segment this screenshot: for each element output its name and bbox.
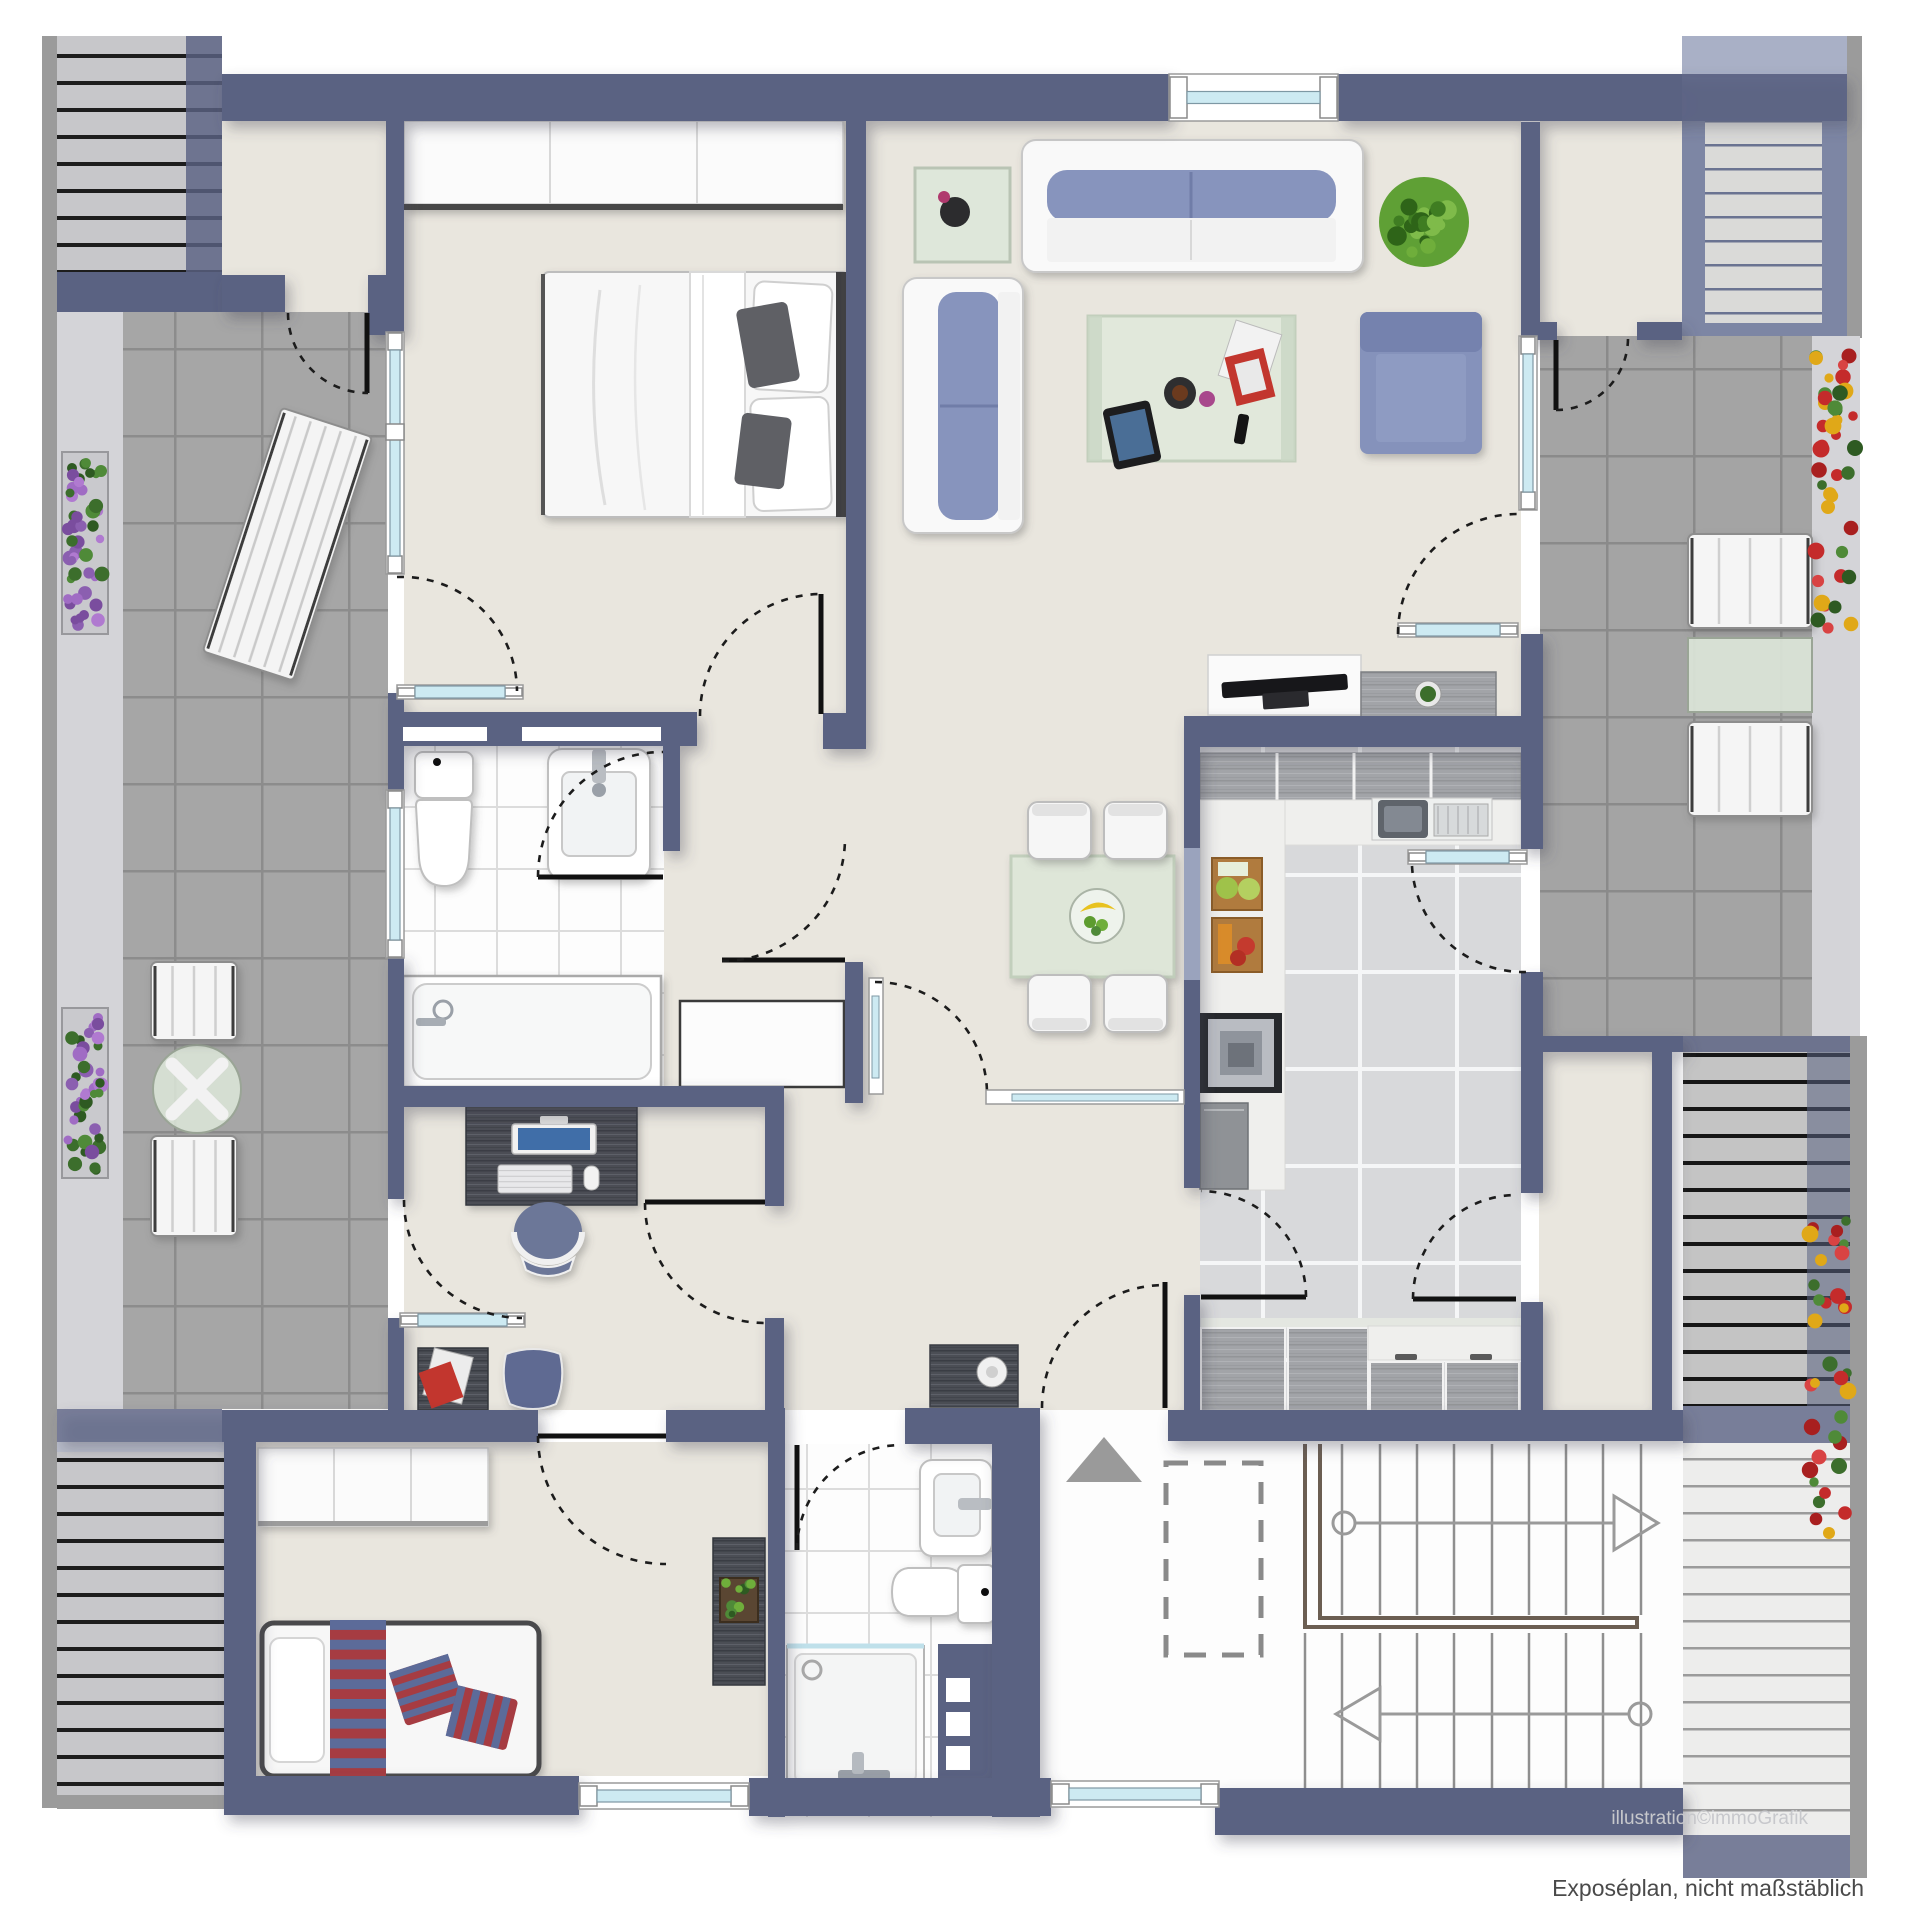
svg-text:illustration©immoGrafik: illustration©immoGrafik xyxy=(1611,1808,1808,1829)
svg-text:Exposéplan, nicht maßstäblich: Exposéplan, nicht maßstäblich xyxy=(1552,1875,1864,1901)
